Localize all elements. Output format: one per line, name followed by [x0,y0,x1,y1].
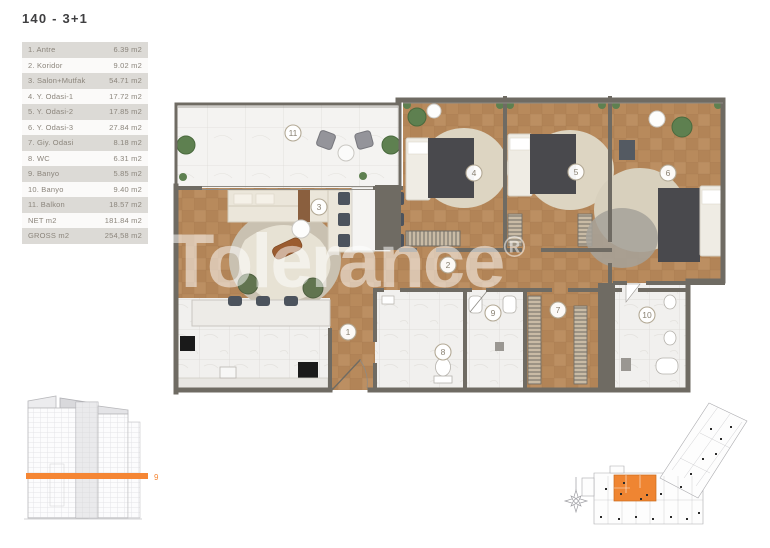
svg-text:10: 10 [642,310,652,320]
room-marker-3: 3 [311,199,327,215]
tower-drawing [24,396,142,519]
room-marker-10: 10 [639,307,655,323]
area-row: 10. Banyo9.40 m2 [22,182,148,198]
room-label: 10. Banyo [28,185,64,194]
svg-text:4: 4 [472,168,477,178]
room-area: 9.40 m2 [114,185,143,194]
area-row: 11. Balkon18.57 m2 [22,197,148,213]
room-area: 54.71 m2 [109,76,142,85]
area-row: 3. Salon+Mutfak54.71 m2 [22,73,148,89]
svg-text:7: 7 [556,305,561,315]
room-label: 8. WC [28,154,50,163]
floor-highlight [26,473,148,479]
svg-text:1: 1 [346,327,351,337]
area-row: NET m2181.84 m2 [22,213,148,229]
room-area: 6.31 m2 [114,154,143,163]
room-label: GROSS m2 [28,231,69,240]
room-marker-8: 8 [435,344,451,360]
room-label: 5. Y. Odasi-2 [28,107,73,116]
room-label: NET m2 [28,216,57,225]
room-area: 17.72 m2 [109,92,142,101]
room-markers: 1 2 3 4 5 6 7 8 9 10 11 [170,90,730,400]
room-label: 2. Koridor [28,61,63,70]
svg-text:8: 8 [441,347,446,357]
svg-text:6: 6 [666,168,671,178]
room-label: 1. Antre [28,45,55,54]
area-row: 6. Y. Odasi-327.84 m2 [22,120,148,136]
room-area: 8.18 m2 [114,138,143,147]
key-plan-outline [582,403,747,524]
area-row: 8. WC6.31 m2 [22,151,148,167]
building-elevation: 9 [20,392,162,532]
key-plan [560,398,756,532]
room-label: 11. Balkon [28,200,65,209]
room-label: 4. Y. Odasi-1 [28,92,73,101]
svg-text:11: 11 [289,128,298,138]
area-table: 1. Antre6.39 m2 2. Koridor9.02 m2 3. Sal… [22,42,148,244]
room-label: 6. Y. Odasi-3 [28,123,73,132]
floor-plan: 1 2 3 4 5 6 7 8 9 10 11 [170,90,730,400]
room-area: 17.85 m2 [109,107,142,116]
room-label: 7. Giy. Odasi [28,138,73,147]
room-area: 5.85 m2 [114,169,143,178]
room-area: 27.84 m2 [109,123,142,132]
area-row: 5. Y. Odasi-217.85 m2 [22,104,148,120]
area-row: GROSS m2254,58 m2 [22,228,148,244]
room-marker-6: 6 [660,165,676,181]
area-row: 2. Koridor9.02 m2 [22,58,148,74]
svg-text:2: 2 [446,260,451,270]
room-area: 6.39 m2 [114,45,143,54]
room-area: 181.84 m2 [105,216,142,225]
room-label: 9. Banyo [28,169,59,178]
area-row: 4. Y. Odasi-117.72 m2 [22,89,148,105]
svg-text:9: 9 [491,308,496,318]
room-marker-2: 2 [440,257,456,273]
page-title: 140 - 3+1 [22,11,88,26]
area-row: 1. Antre6.39 m2 [22,42,148,58]
room-marker-1: 1 [340,324,356,340]
area-row: 7. Giy. Odasi8.18 m2 [22,135,148,151]
room-marker-11: 11 [285,125,301,141]
room-marker-5: 5 [568,164,584,180]
room-label: 3. Salon+Mutfak [28,76,85,85]
room-marker-7: 7 [550,302,566,318]
room-area: 9.02 m2 [114,61,143,70]
room-marker-4: 4 [466,165,482,181]
svg-text:3: 3 [317,202,322,212]
room-area: 254,58 m2 [105,231,142,240]
room-marker-9: 9 [485,305,501,321]
svg-text:5: 5 [574,167,579,177]
floor-number: 9 [154,473,159,482]
area-row: 9. Banyo5.85 m2 [22,166,148,182]
room-area: 18.57 m2 [109,200,142,209]
